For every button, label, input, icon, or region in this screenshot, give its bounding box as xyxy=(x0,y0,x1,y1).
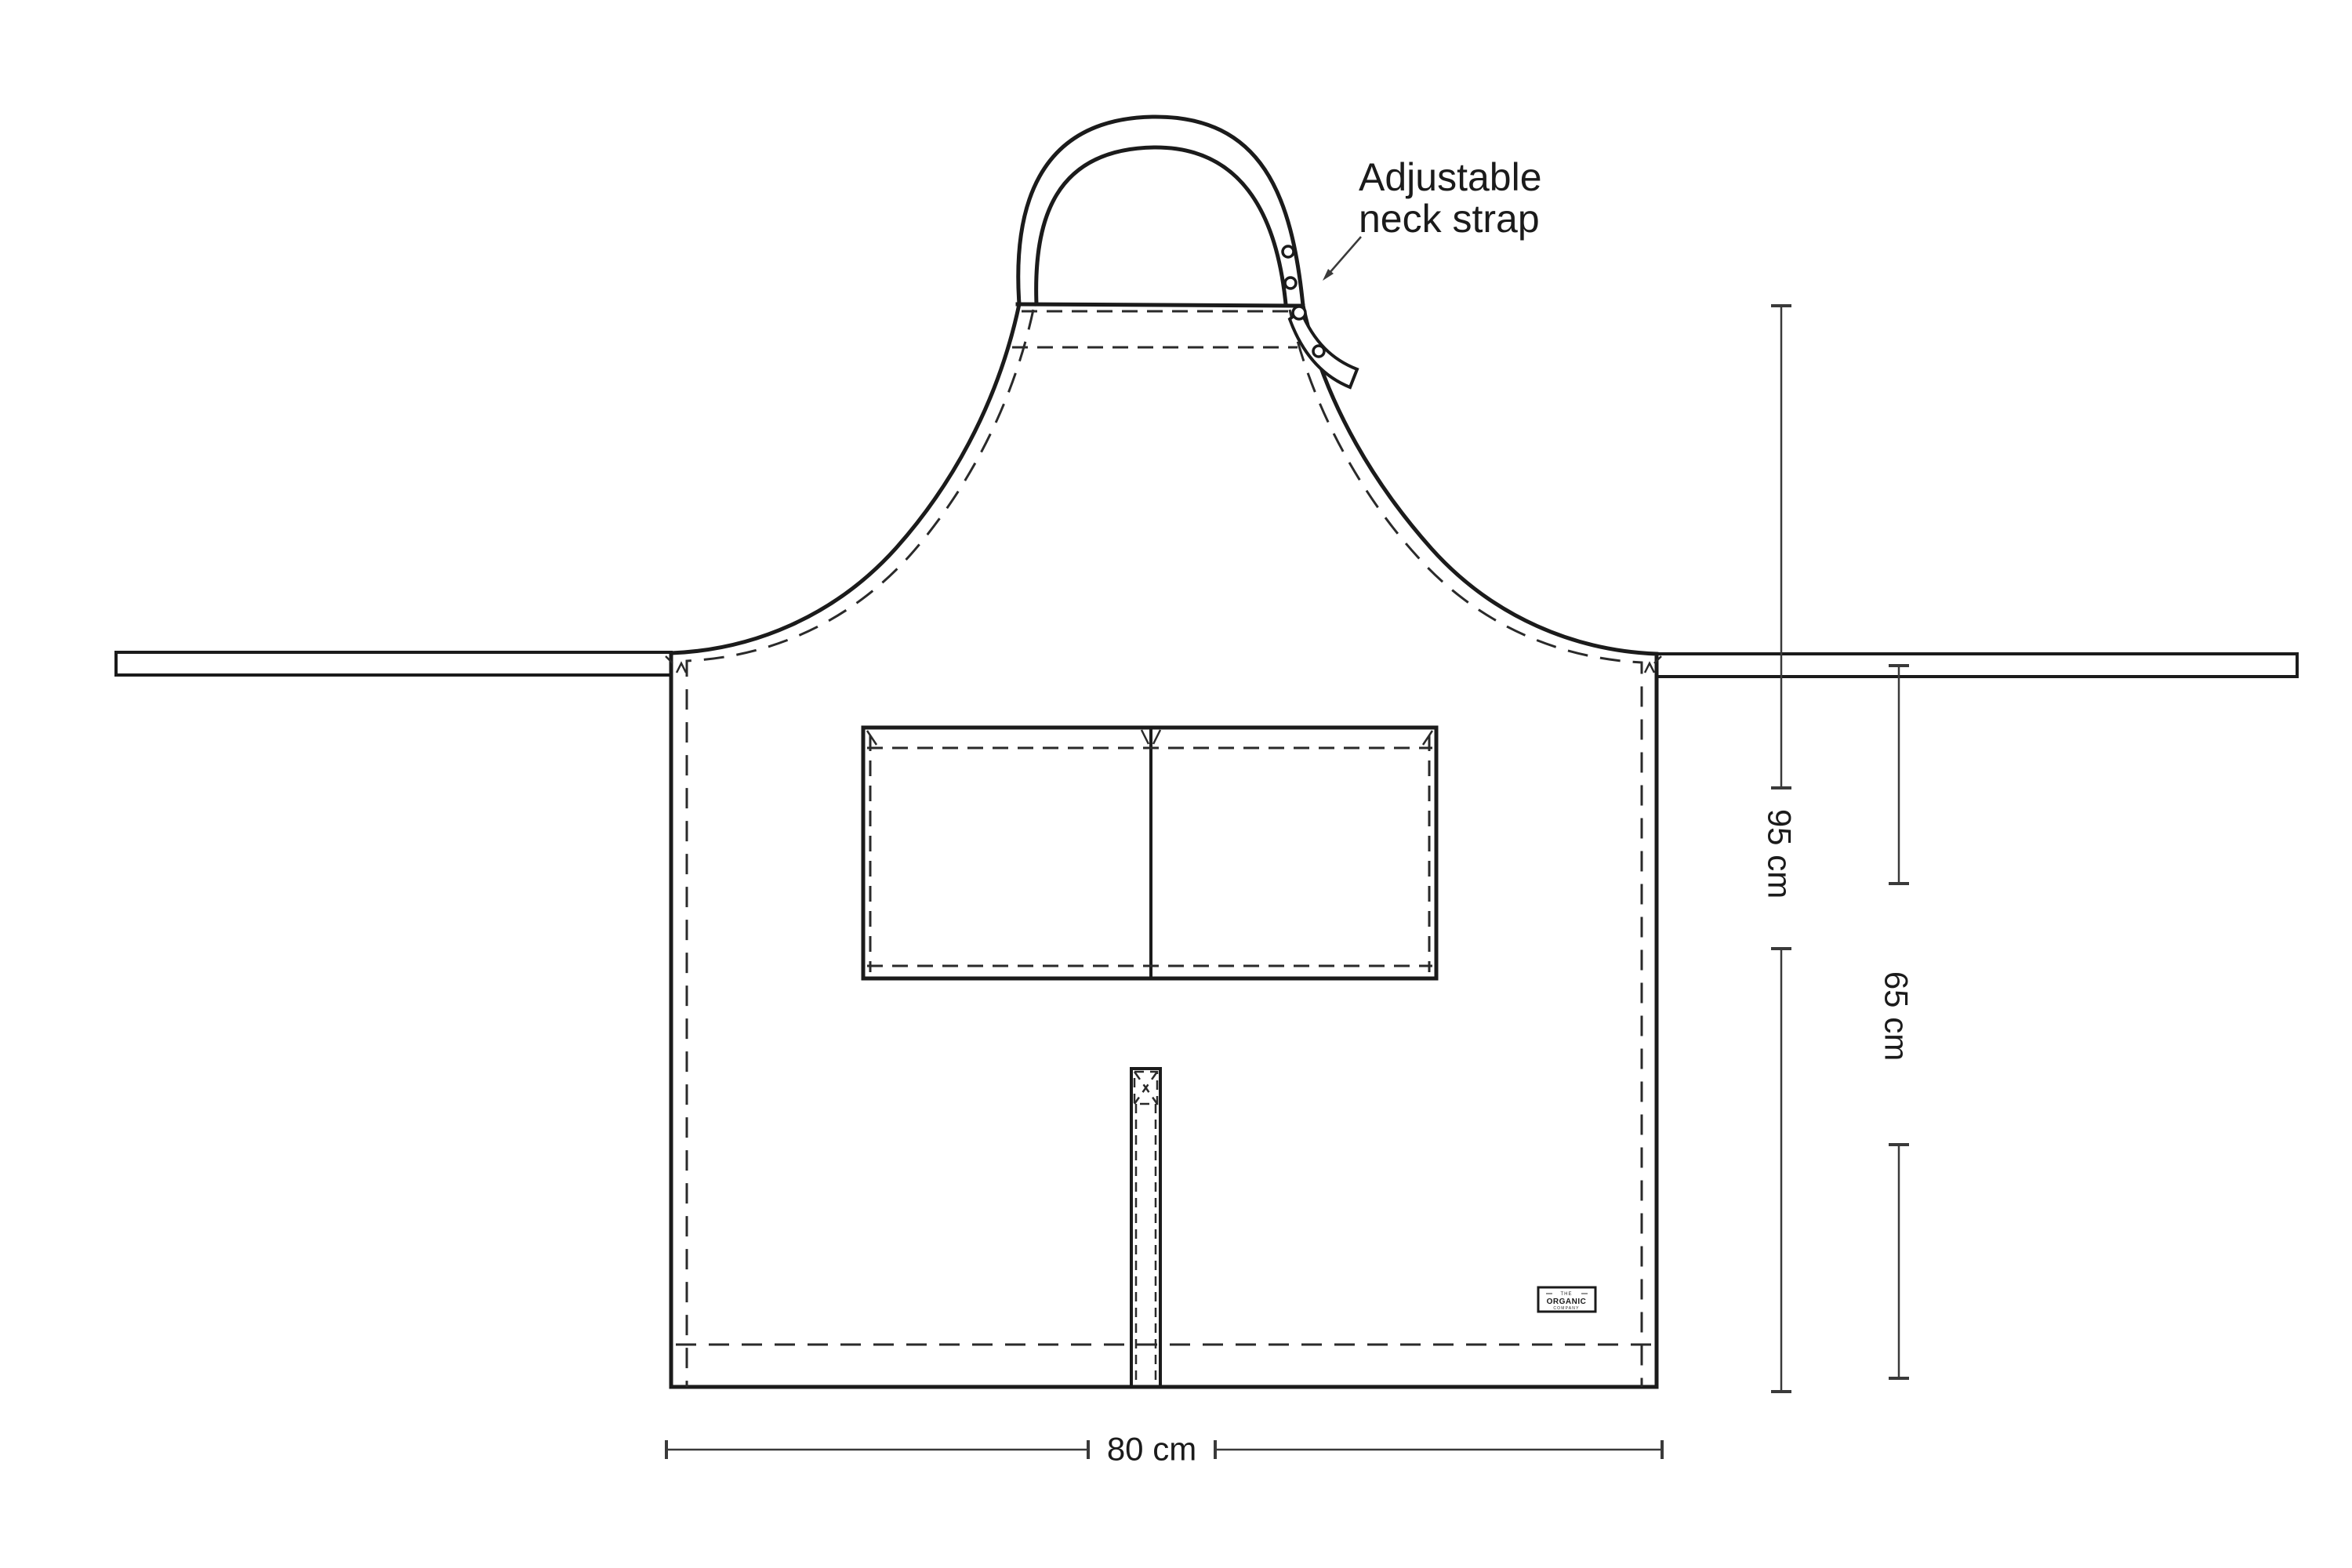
drawing-canvas: Adjustable neck strap 95 cm 65 cm 80 cm … xyxy=(0,0,2352,1568)
brand-label-line2: ORGANIC xyxy=(1547,1298,1587,1306)
front-pocket xyxy=(863,728,1436,978)
annotation-line2: neck strap xyxy=(1359,197,1540,241)
right-tie-reinforce-mark xyxy=(1645,663,1654,673)
hanging-strap xyxy=(1131,1069,1160,1387)
annotation-arrow-line xyxy=(1329,237,1361,274)
right-waist-tie xyxy=(1657,654,2297,677)
dimension-skirt-height: 65 cm xyxy=(1878,666,1915,1378)
annotation-neck-strap: Adjustable neck strap xyxy=(1323,155,1542,281)
left-waist-tie xyxy=(116,652,671,675)
brand-label: THE ORGANIC COMPANY xyxy=(1538,1287,1595,1312)
annotation-line1: Adjustable xyxy=(1359,155,1542,199)
snap-hole-4 xyxy=(1313,346,1324,357)
dim80-label: 80 cm xyxy=(1107,1431,1196,1468)
dim95-label: 95 cm xyxy=(1762,809,1798,898)
strap-edge-stitch xyxy=(1136,1104,1156,1384)
strap-bartack-cross xyxy=(1134,1072,1157,1104)
snap-hole-1 xyxy=(1283,246,1294,257)
neck-strap-inner xyxy=(1036,147,1286,304)
snap-hole-2 xyxy=(1285,278,1296,289)
snap-hole-3 xyxy=(1293,307,1305,319)
dimension-width: 80 cm xyxy=(666,1431,1662,1468)
right-tie-band xyxy=(1657,654,2297,677)
dimension-total-height: 95 cm xyxy=(1762,306,1798,1392)
bib-top-edge xyxy=(1018,304,1303,306)
dim65-label: 65 cm xyxy=(1878,971,1915,1061)
brand-label-line3: COMPANY xyxy=(1553,1306,1579,1311)
left-tie-reinforce-mark xyxy=(677,663,686,673)
brand-label-line1: THE xyxy=(1561,1292,1573,1297)
apron-technical-drawing: Adjustable neck strap 95 cm 65 cm 80 cm … xyxy=(0,0,2352,1568)
left-tie-band xyxy=(116,652,671,675)
